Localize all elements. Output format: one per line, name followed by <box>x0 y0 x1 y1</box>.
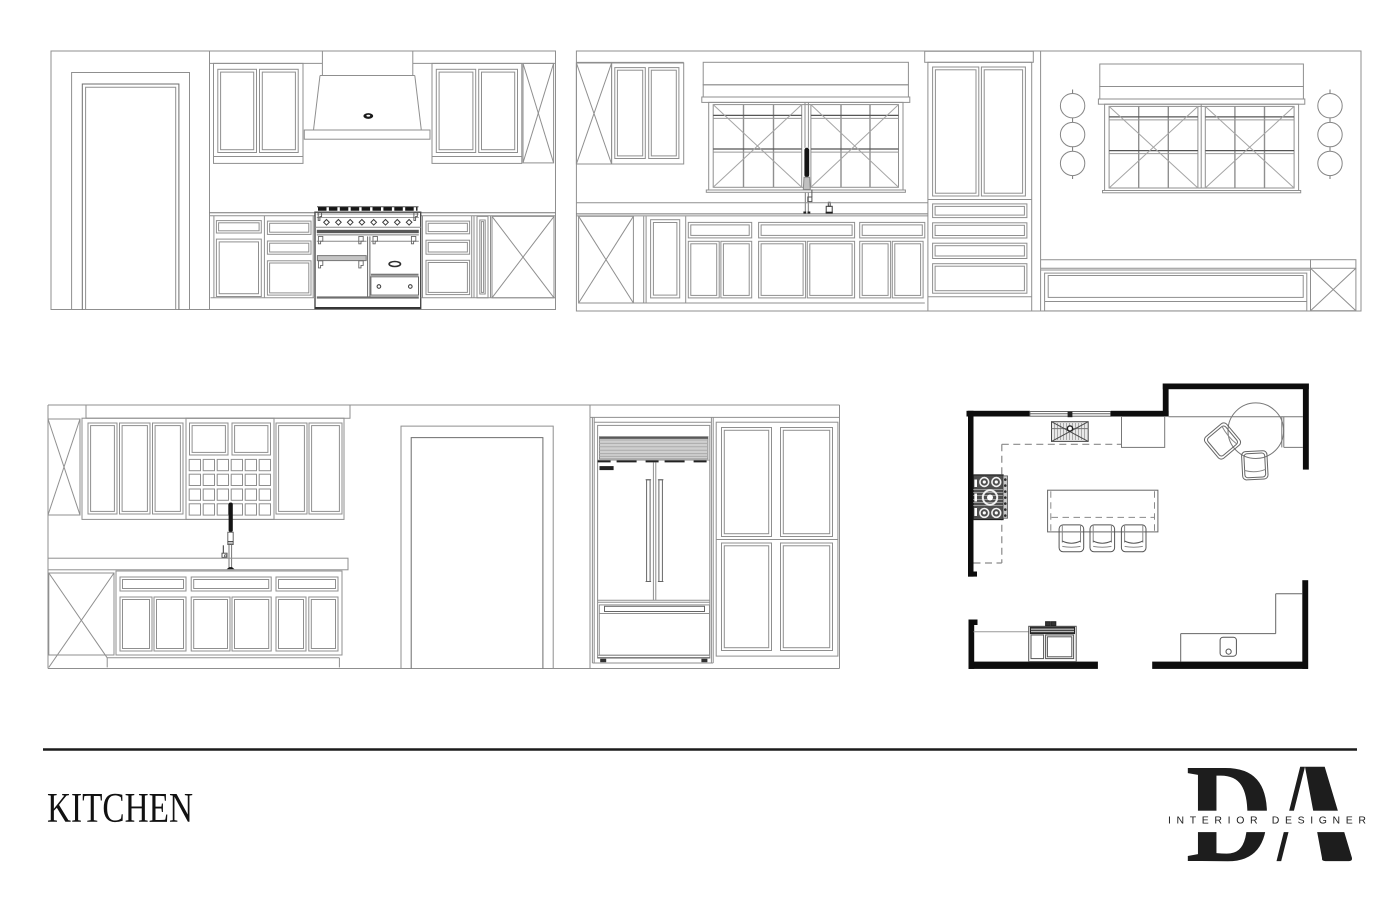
svg-text:INTERIOR DESIGNER: INTERIOR DESIGNER <box>1168 815 1370 827</box>
svg-text:KITCHEN: KITCHEN <box>47 786 193 832</box>
